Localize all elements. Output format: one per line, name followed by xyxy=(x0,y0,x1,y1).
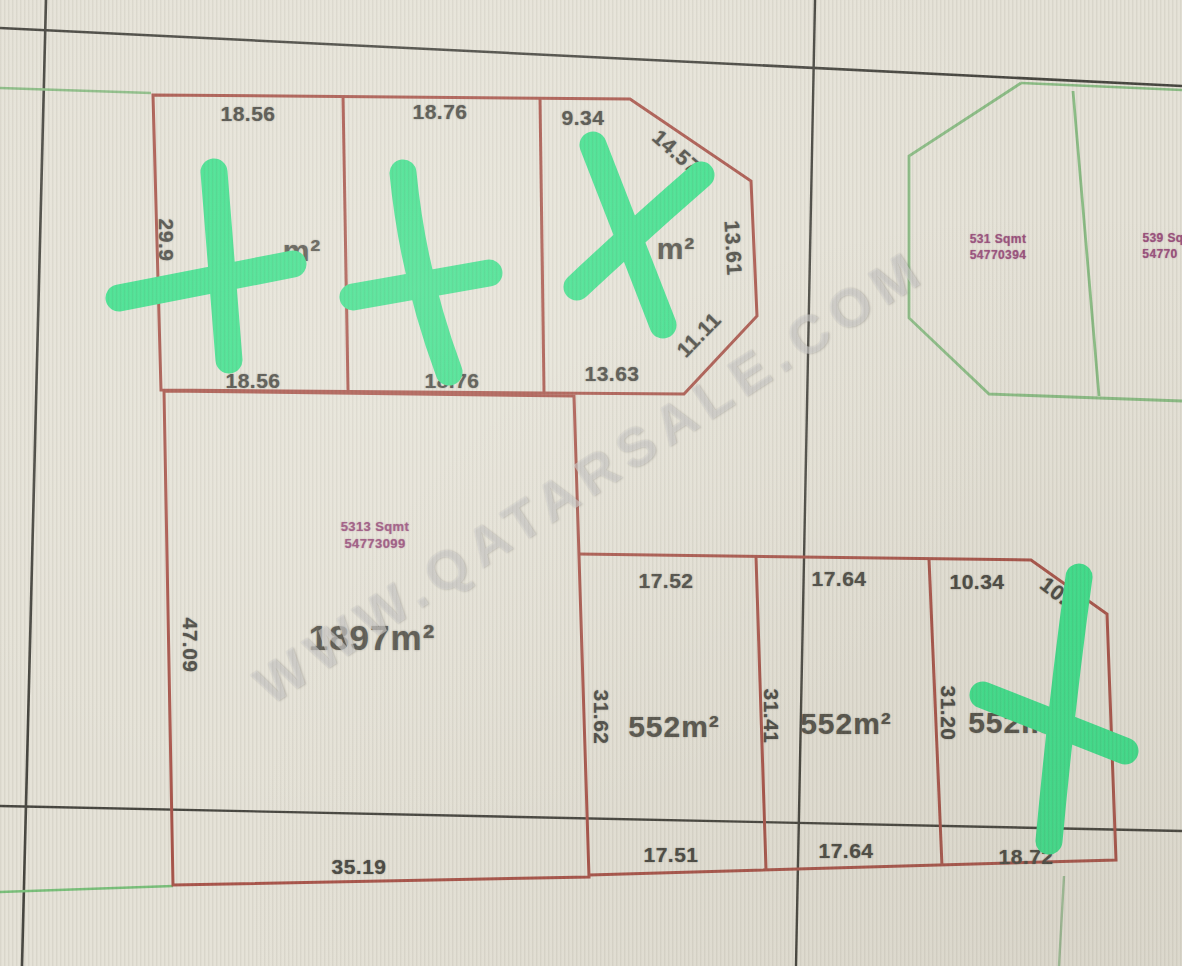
cadastral-plot-map-photo: 18.56 29.9 18.56 m² 18.76 18.76 9.34 14.… xyxy=(0,0,1182,966)
cross-mark-p1-stroke-horizontal xyxy=(119,264,293,298)
cross-mark-p2 xyxy=(353,173,489,372)
cross-marks xyxy=(0,0,1182,966)
cross-mark-b3 xyxy=(983,577,1125,841)
cross-mark-p2-stroke-horizontal xyxy=(353,273,489,297)
cross-mark-p1 xyxy=(119,172,293,360)
cross-mark-p3 xyxy=(577,145,701,325)
